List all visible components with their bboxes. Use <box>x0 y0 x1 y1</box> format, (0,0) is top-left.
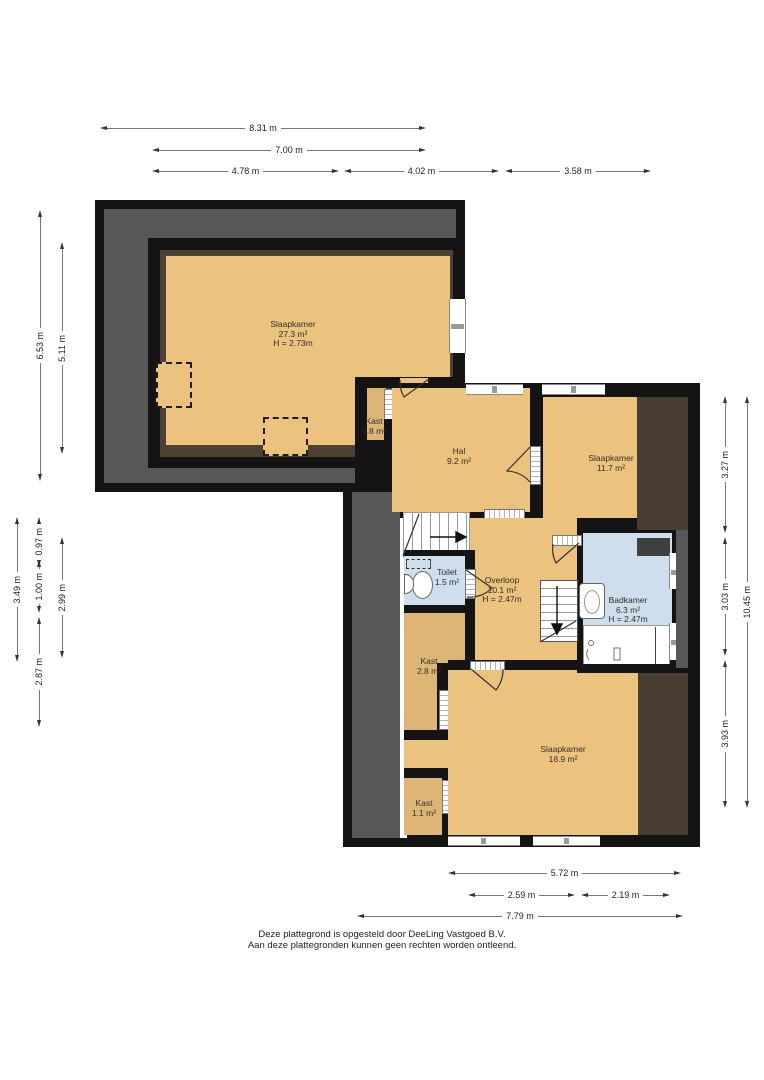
dimension-259: 2.59 m <box>468 890 575 900</box>
room-area: 2.8 m² <box>417 667 441 677</box>
dimension-label: 3.93 m <box>720 716 730 752</box>
dimension-arrow-end <box>60 447 64 454</box>
dimension-arrow-end <box>723 649 727 656</box>
room-label-kast-28: Kast2.8 m² <box>417 657 441 676</box>
dimension-arrow-start <box>15 517 19 524</box>
room-area: 1.1 m² <box>412 809 436 819</box>
dimension-arrow-end <box>663 893 670 897</box>
dimension-label: 6.53 m <box>35 328 45 364</box>
dimension-line <box>62 544 63 580</box>
room-height: H = 2.47m <box>482 595 521 605</box>
dimension-line <box>263 171 332 172</box>
room-label-kast-11: Kast1.1 m² <box>412 799 436 818</box>
dimension-arrow-end <box>723 526 727 533</box>
dimension-arrow-start <box>723 396 727 403</box>
room-label-slaapkamer-117: Slaapkamer11.7 m² <box>588 454 633 473</box>
dimension-label: 2.59 m <box>504 890 540 900</box>
dimension-line <box>364 916 502 917</box>
dimension-arrow-start <box>37 517 41 524</box>
dimension-arrow-end <box>38 474 42 481</box>
room-area: 1.5 m² <box>435 578 459 588</box>
dimension-arrow-end <box>644 169 651 173</box>
dimension-700: 7.00 m <box>152 145 426 155</box>
floorplan-canvas: Slaapkamer27.3 m²H = 2.73mKast0.8 m²Hal9… <box>0 0 764 1080</box>
dimension-line <box>588 895 608 896</box>
dimension-779: 7.79 m <box>357 911 683 921</box>
dimension-arrow-end <box>723 801 727 808</box>
dimension-line <box>475 895 504 896</box>
room-label-overloop: Overloop10.1 m²H = 2.47m <box>482 576 521 605</box>
dimension-arrow-start <box>581 893 588 897</box>
dimension-349: 3.49 m <box>12 517 22 662</box>
dimension-arrow-start <box>723 660 727 667</box>
dimension-393: 3.93 m <box>720 660 730 808</box>
dimension-label: 7.79 m <box>502 911 538 921</box>
dimension-line <box>512 171 560 172</box>
dimension-arrow-start <box>505 169 512 173</box>
dimension-line <box>40 217 41 328</box>
dimension-arrow-end <box>419 126 426 130</box>
dimension-label: 1.00 m <box>34 569 44 605</box>
dimension-label: 4.02 m <box>404 166 440 176</box>
dimension-097: 0.97 m <box>34 517 44 556</box>
dimension-label: 3.49 m <box>12 572 22 608</box>
dimension-line <box>725 667 726 716</box>
dimension-arrow-end <box>60 651 64 658</box>
dimension-arrow-end <box>15 655 19 662</box>
dimension-arrow-start <box>745 396 749 403</box>
dimension-arrow-start <box>100 126 107 130</box>
dimension-line <box>539 895 568 896</box>
dimension-299: 2.99 m <box>57 537 67 658</box>
dimension-arrow-start <box>448 871 455 875</box>
dimension-arrow-end <box>419 148 426 152</box>
dimension-line <box>40 363 41 474</box>
footer-line-2: Aan deze plattegronden kunnen geen recht… <box>0 940 764 951</box>
dimension-line <box>62 249 63 331</box>
dimension-line <box>159 171 228 172</box>
dimension-arrow-start <box>37 560 41 567</box>
dimension-line <box>107 128 245 129</box>
room-area: 18.9 m² <box>540 755 585 765</box>
dimension-label: 3.03 m <box>720 579 730 615</box>
dimension-line <box>725 544 726 579</box>
dimension-358: 3.58 m <box>505 166 651 176</box>
room-label-slaapkamer-27: Slaapkamer27.3 m²H = 2.73m <box>270 320 315 349</box>
room-height: H = 2.47m <box>608 615 647 625</box>
dimension-line <box>582 873 674 874</box>
dimension-653: 6.53 m <box>35 210 45 481</box>
dimension-572: 5.72 m <box>448 868 681 878</box>
dimension-831: 8.31 m <box>100 123 426 133</box>
dimension-label: 2.99 m <box>57 580 67 616</box>
dimension-line <box>159 150 271 151</box>
dimension-line <box>747 622 748 801</box>
dimension-arrow-end <box>676 914 683 918</box>
dimension-arrow-start <box>468 893 475 897</box>
dimension-line <box>17 524 18 572</box>
room-area: 11.7 m² <box>588 464 633 474</box>
dimension-1045: 10.45 m <box>742 396 752 808</box>
dimension-arrow-start <box>152 148 159 152</box>
dimension-478: 4.78 m <box>152 166 339 176</box>
dimension-label: 5.72 m <box>547 868 583 878</box>
dimension-label: 2.19 m <box>608 890 644 900</box>
dimension-label: 7.00 m <box>271 145 307 155</box>
dimension-arrow-start <box>152 169 159 173</box>
room-label-badkamer: Badkamer6.3 m²H = 2.47m <box>608 596 647 625</box>
dimension-100: 1.00 m <box>34 560 44 613</box>
dimension-arrow-end <box>492 169 499 173</box>
dimension-label: 10.45 m <box>742 582 752 623</box>
dimension-line <box>596 171 644 172</box>
dimension-287: 2.87 m <box>34 617 44 727</box>
room-area: 0.8 m² <box>362 427 386 437</box>
dimension-line <box>725 752 726 801</box>
dimension-arrow-start <box>357 914 364 918</box>
room-label-kast-08: Kast0.8 m² <box>362 417 386 436</box>
dimension-label: 0.97 m <box>34 524 44 560</box>
dimension-arrow-end <box>332 169 339 173</box>
dimension-label: 4.78 m <box>228 166 264 176</box>
dimension-219: 2.19 m <box>581 890 670 900</box>
room-label-toilet: Toilet1.5 m² <box>435 568 459 587</box>
dimension-arrow-start <box>344 169 351 173</box>
dimension-label: 3.58 m <box>560 166 596 176</box>
dimension-line <box>281 128 419 129</box>
dimension-line <box>62 365 63 447</box>
dimension-arrow-end <box>37 720 41 727</box>
dimension-line <box>307 150 419 151</box>
dimension-arrow-end <box>37 606 41 613</box>
dimension-arrow-start <box>38 210 42 217</box>
dimension-label: 8.31 m <box>245 123 281 133</box>
dimension-line <box>643 895 663 896</box>
dimension-line <box>39 624 40 654</box>
dimension-line <box>747 403 748 582</box>
room-height: H = 2.73m <box>270 339 315 349</box>
dimension-label: 5.11 m <box>57 331 67 366</box>
dimension-327: 3.27 m <box>720 396 730 533</box>
dimension-arrow-end <box>674 871 681 875</box>
dimension-line <box>725 403 726 447</box>
dimension-label: 2.87 m <box>34 654 44 690</box>
room-area: 9.2 m² <box>447 457 471 467</box>
dimension-line <box>538 916 676 917</box>
dimension-303: 3.03 m <box>720 537 730 656</box>
room-label-slaapkamer-189: Slaapkamer18.9 m² <box>540 745 585 764</box>
dimension-line <box>455 873 547 874</box>
dimension-line <box>439 171 492 172</box>
dimension-line <box>39 690 40 720</box>
dimension-arrow-start <box>723 537 727 544</box>
room-label-hal: Hal9.2 m² <box>447 447 471 466</box>
dimension-line <box>62 615 63 651</box>
dimension-arrow-start <box>60 537 64 544</box>
dimension-line <box>351 171 404 172</box>
dimension-402: 4.02 m <box>344 166 499 176</box>
dimension-line <box>725 614 726 649</box>
dimension-arrow-start <box>37 617 41 624</box>
dimension-line <box>725 482 726 526</box>
dimension-arrow-end <box>568 893 575 897</box>
dimension-511: 5.11 m <box>57 242 67 454</box>
dimension-arrow-end <box>745 801 749 808</box>
footer-line-1: Deze plattegrond is opgesteld door DeeLi… <box>0 929 764 940</box>
dimension-arrow-start <box>60 242 64 249</box>
dimension-line <box>17 607 18 655</box>
dimension-label: 3.27 m <box>720 447 730 483</box>
